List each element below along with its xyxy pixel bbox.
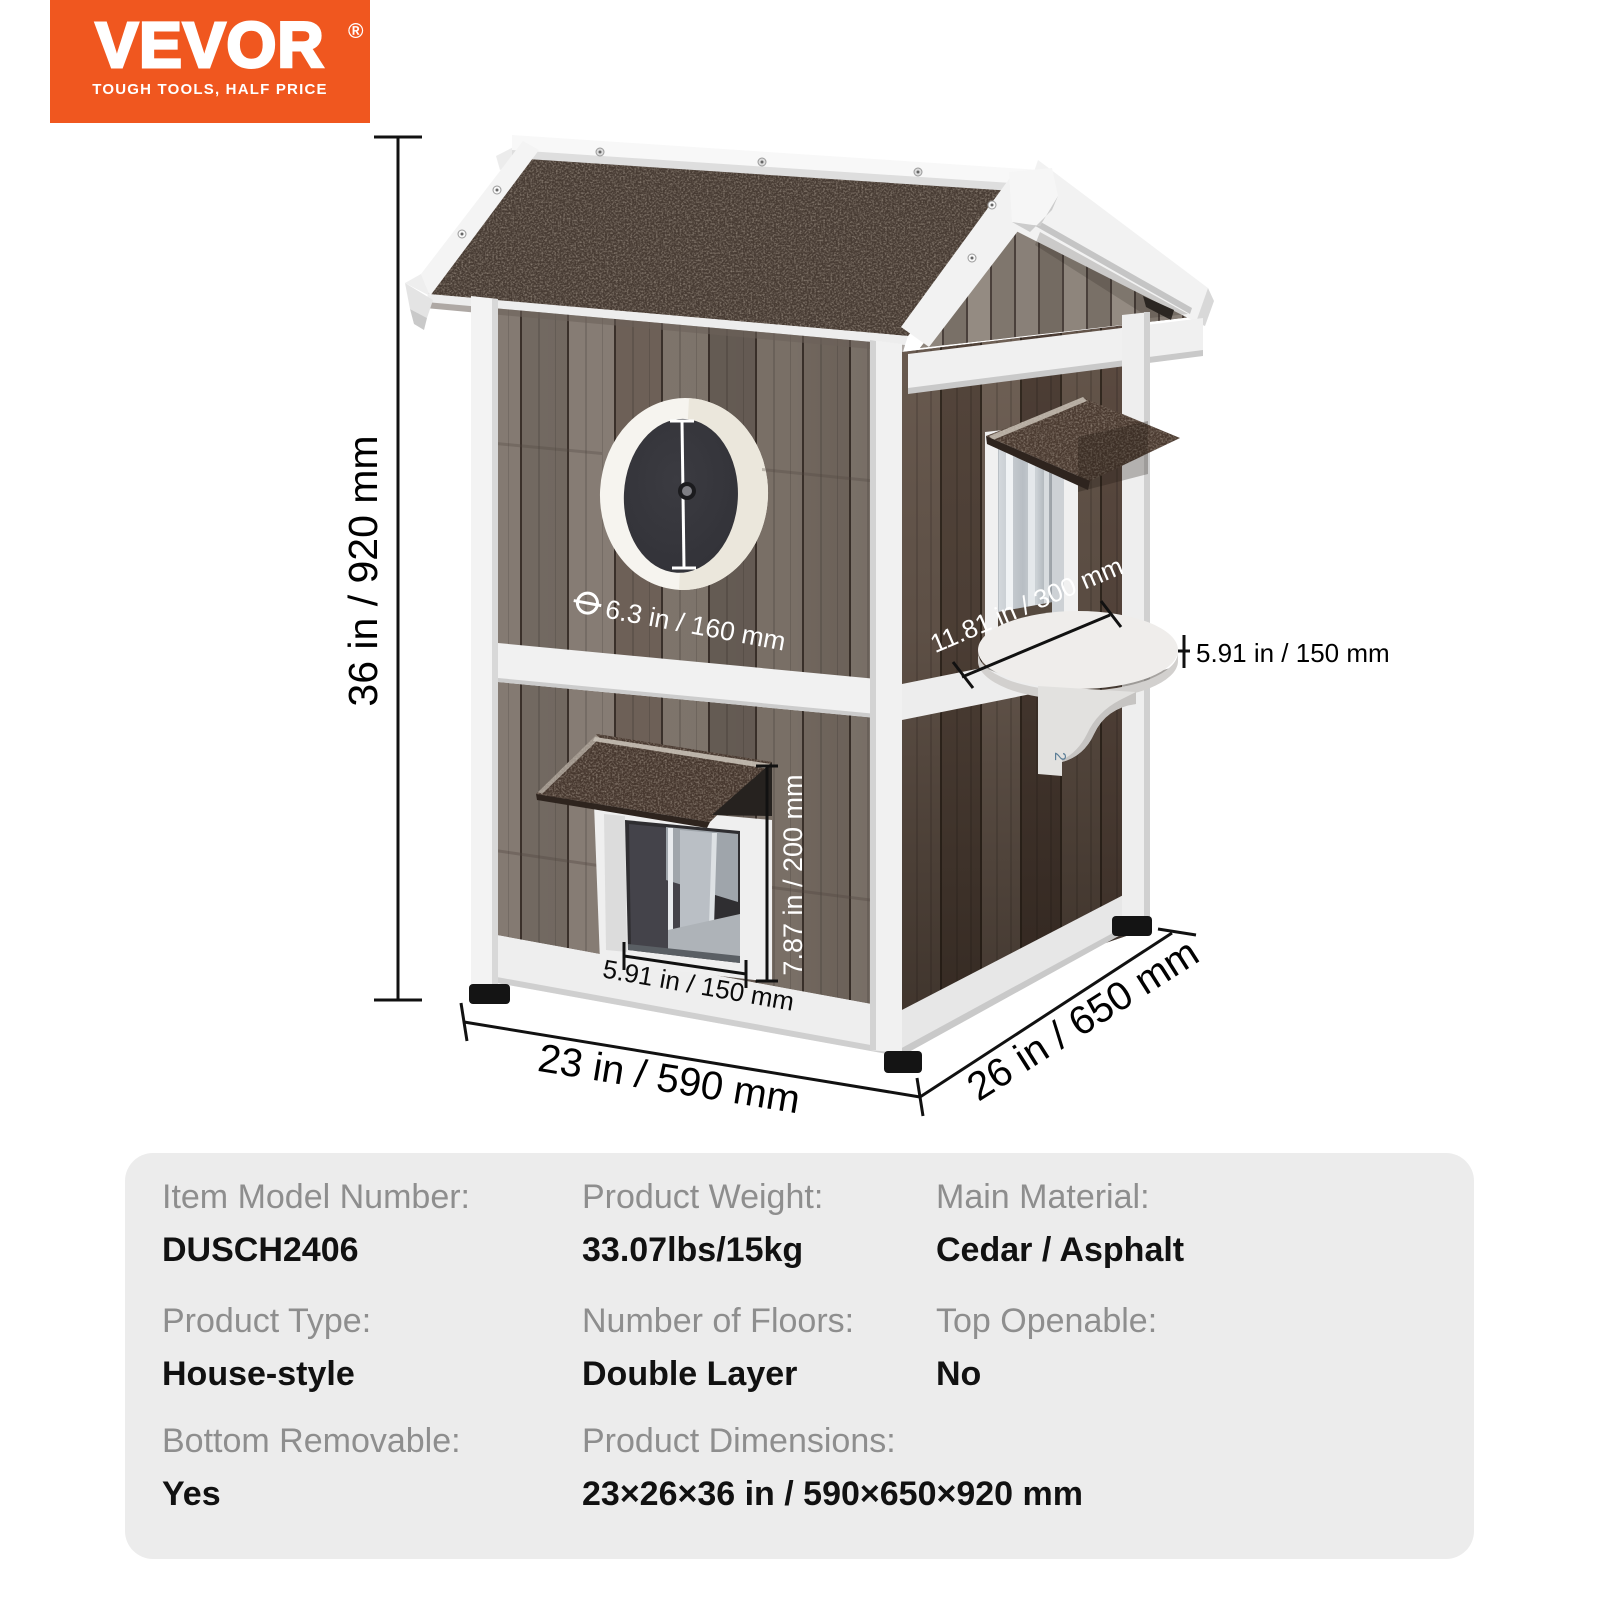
svg-text:5.91 in / 150 mm: 5.91 in / 150 mm bbox=[1196, 638, 1390, 668]
svg-text:7.87 in / 200 mm: 7.87 in / 200 mm bbox=[778, 774, 808, 975]
svg-text:23 in / 590 mm: 23 in / 590 mm bbox=[535, 1036, 803, 1122]
svg-text:2: 2 bbox=[1051, 752, 1068, 761]
svg-text:36 in / 920 mm: 36 in / 920 mm bbox=[340, 435, 386, 706]
